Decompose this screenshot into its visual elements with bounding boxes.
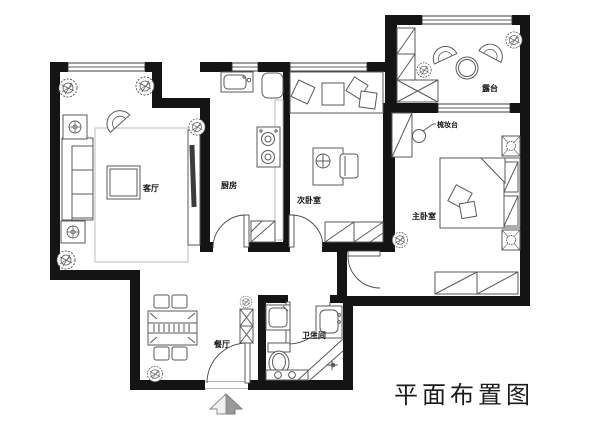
door-kitchen [213,215,249,248]
plant-icon [417,63,431,77]
label-dressing-table: 梳妆台 [437,120,458,129]
dining-chair [172,295,187,308]
terrace-shelf [397,28,438,102]
label-bathroom: 卫生间 [302,330,326,340]
kitchen-furniture [221,72,283,242]
label-dining: 餐厅 [213,339,230,349]
coffee-table [107,166,140,199]
side-table-bottom [61,221,85,243]
terrace-furniture [397,28,522,102]
door-master [348,251,380,288]
pillow [359,91,377,109]
sofa [62,138,93,220]
stool [413,130,426,143]
bedroom2-furniture [290,72,383,242]
bath-counter [266,370,308,380]
kitchen-counter [275,100,283,240]
desk-chair [340,154,358,178]
plant-icon [240,296,252,308]
wardrobe-master [435,272,518,294]
plant-icon [392,232,407,247]
plant-icon [189,119,205,135]
label-master-bedroom: 主卧室 [412,211,436,221]
tv-wall [188,130,200,245]
terrace-chair [479,40,507,63]
side-table-top [63,115,87,139]
window-bedroom2 [290,63,367,71]
flower-icon [69,121,81,133]
dining-chair [172,347,187,360]
dining-furniture [147,295,253,382]
plant-icon [59,79,77,97]
label-kitchen: 厨房 [221,180,237,190]
wardrobe-bedroom2 [325,222,383,242]
door-bedroom2 [289,215,323,247]
flower-icon [67,226,79,238]
fridge [262,73,283,98]
window-master [438,104,510,112]
terrace-chair [429,42,457,64]
dining-table [148,311,197,345]
window-terrace [422,16,512,24]
shower-drain-icon [331,363,336,368]
window-kitchen [232,63,258,71]
label-living-room: 客厅 [142,183,159,193]
dining-chair [154,347,169,360]
bed2 [290,72,383,113]
dining-cabinet [240,309,253,343]
plant-icon [136,77,154,95]
bathroom-furniture [266,305,343,380]
master-furniture [392,113,520,294]
window-living-room [68,63,145,71]
nightstand-lamp [502,230,520,250]
throw [459,201,476,218]
dressing-table [392,113,436,157]
floor-plan-page: 客厅 厨房 次卧室 主卧室 露台 餐厅 卫生间 梳妆台 平面布置图 [0,0,600,423]
stove [257,127,280,167]
label-bedroom2: 次卧室 [297,195,321,205]
washing-machine [266,305,290,330]
plant-icon [506,32,522,48]
desk [313,148,358,185]
north-arrow-icon [210,394,242,414]
shower-corner [298,339,343,380]
nightstand-lamp [502,136,520,156]
terrace-table [456,57,478,79]
kitchen-cart [251,221,275,242]
label-terrace: 露台 [482,83,498,93]
plant-icon [57,251,75,269]
page-title: 平面布置图 [394,382,534,409]
tv [189,145,196,207]
floor-plan-svg: 客厅 厨房 次卧室 主卧室 露台 餐厅 卫生间 梳妆台 平面布置图 [0,0,600,423]
master-bed [440,158,520,228]
dining-chair [154,295,169,308]
kitchen-sink [221,72,253,92]
door-entry [205,343,250,389]
plant-icon [147,366,162,381]
